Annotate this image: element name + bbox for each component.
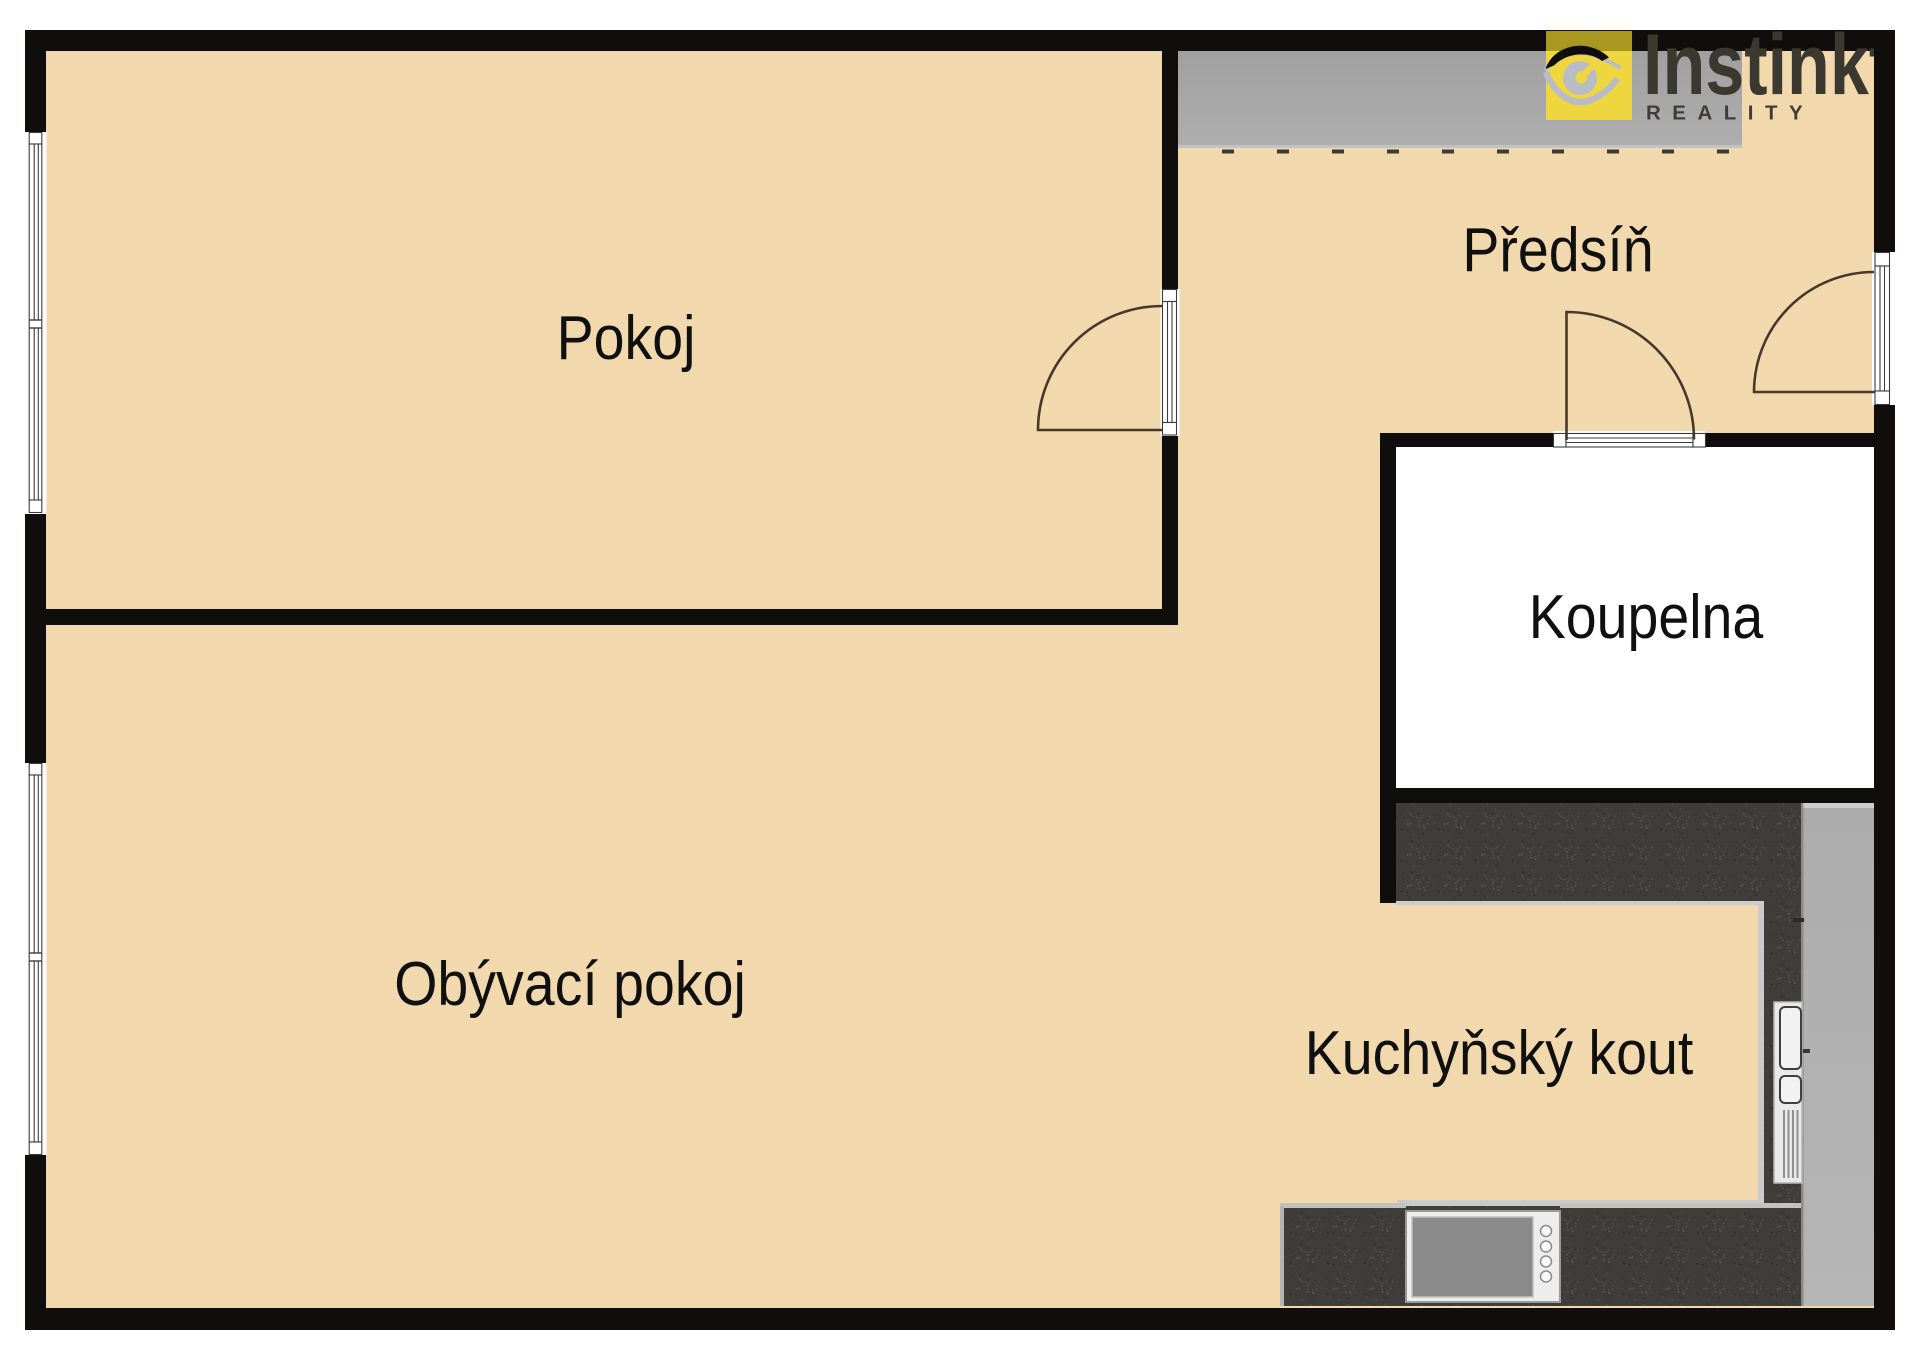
svg-text:Pokoj: Pokoj [557,304,696,372]
svg-text:Instinkt: Instinkt [1643,16,1892,112]
svg-text:REALITY: REALITY [1646,102,1814,125]
svg-text:Koupelna: Koupelna [1529,583,1764,651]
svg-text:Předsíň: Předsíň [1462,216,1653,284]
svg-text:Obývací pokoj: Obývací pokoj [394,950,746,1018]
svg-text:Kuchyňský kout: Kuchyňský kout [1305,1019,1694,1087]
